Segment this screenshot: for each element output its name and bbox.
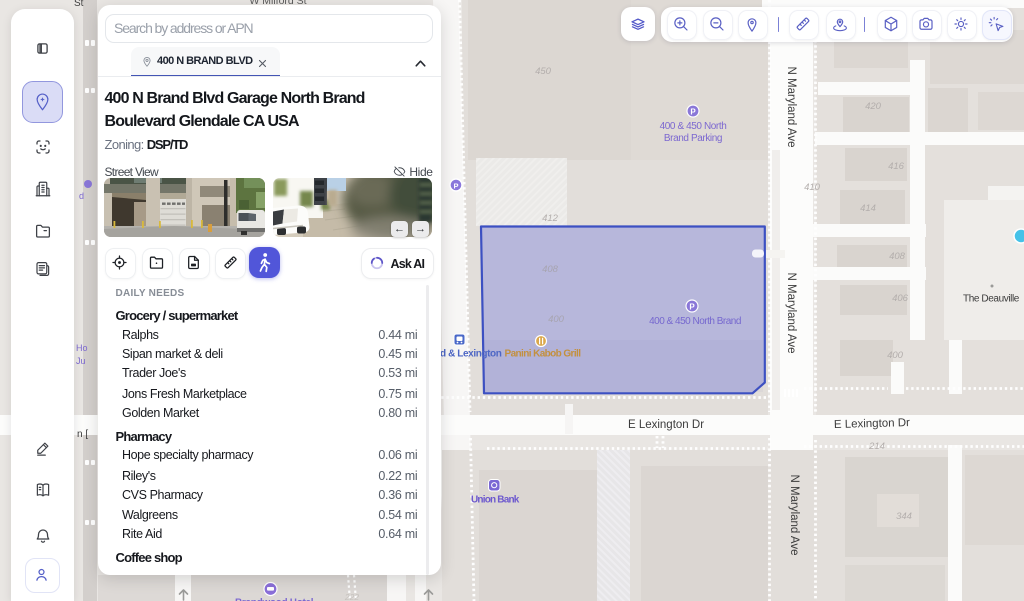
svg-text:408: 408 [889,251,906,262]
svg-text:n [: n [ [77,429,88,440]
svg-text:E Lexington Dr: E Lexington Dr [834,417,911,431]
svg-text:400: 400 [548,314,565,325]
svg-text:P: P [689,303,695,312]
svg-text:Panini Kabob Grill: Panini Kabob Grill [505,349,582,360]
svg-text:414: 414 [860,203,876,214]
svg-text:N Maryland Ave: N Maryland Ave [785,67,797,148]
svg-text:406: 406 [892,293,909,304]
svg-text:344: 344 [896,511,912,522]
svg-text:416: 416 [888,161,905,172]
svg-text:Brand Parking: Brand Parking [664,133,722,144]
svg-text:The Deauville: The Deauville [963,294,1020,305]
svg-text:E Lexington Dr: E Lexington Dr [628,419,704,431]
svg-text:400 & 450 North Brand: 400 & 450 North Brand [649,316,741,327]
svg-text:d & Lexington: d & Lexington [440,349,502,360]
svg-text:Ho: Ho [76,343,88,353]
svg-text:222: 222 [344,592,359,601]
svg-text:Brandwood Hotel: Brandwood Hotel [235,598,314,601]
svg-text:400 & 450 North: 400 & 450 North [660,121,727,132]
svg-text:Union Bank: Union Bank [471,495,520,506]
svg-text:P: P [690,108,696,117]
svg-text:N Maryland Ave: N Maryland Ave [788,475,800,556]
svg-text:450: 450 [535,66,552,77]
svg-text:Ju: Ju [76,356,86,366]
svg-text:420: 420 [865,101,882,112]
svg-text:400: 400 [887,350,904,361]
svg-text:d: d [79,191,84,201]
svg-text:410: 410 [804,182,821,193]
svg-text:408: 408 [542,264,559,275]
svg-text:214: 214 [868,441,885,452]
svg-text:412: 412 [542,213,559,224]
svg-text:P: P [453,182,458,191]
svg-text:N Maryland Ave: N Maryland Ave [785,273,797,354]
